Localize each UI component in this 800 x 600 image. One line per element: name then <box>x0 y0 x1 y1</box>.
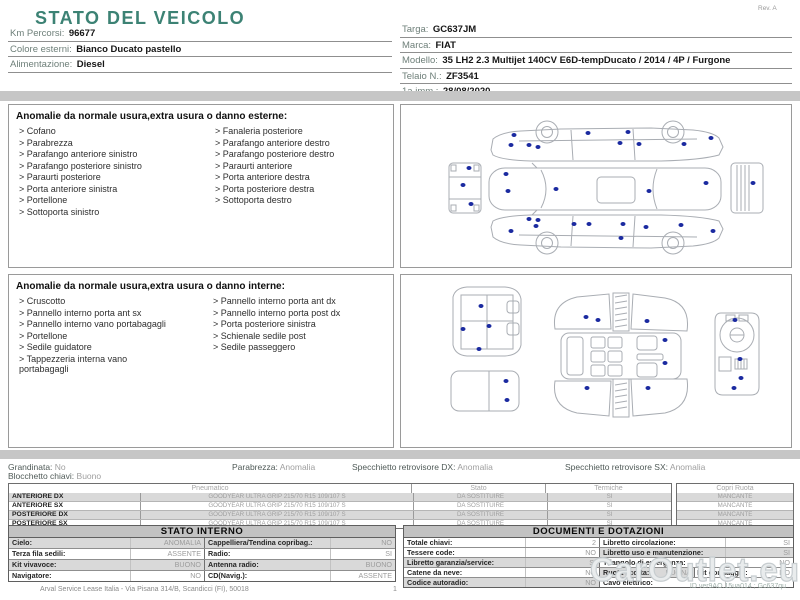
kv-label: Libretto circolazione: <box>600 538 725 547</box>
kv-label: Radio: <box>205 549 330 559</box>
tyre-row: POSTERIORE DXGOODYEAR ULTRA GRIP 215/70 … <box>9 510 671 519</box>
damage-dot <box>626 130 631 134</box>
status-blocchetto-chiavi: Blocchetto chiavi: Buono <box>8 471 101 481</box>
damage-dot <box>509 229 514 233</box>
status-label: Parabrezza: <box>232 462 278 472</box>
damage-dot <box>738 357 743 361</box>
kv-value: BUONO <box>130 560 205 570</box>
damage-dot <box>584 315 589 319</box>
damage-dot <box>572 222 577 226</box>
interior-damage-diagram <box>400 274 792 448</box>
damage-dot <box>751 181 756 185</box>
kv-label: Libretto garanzia/service: <box>404 558 525 567</box>
field-label: Colore esterni: <box>10 44 72 55</box>
field-label: Modello: <box>402 55 438 66</box>
damage-dot <box>644 225 649 229</box>
anomaly-item: > Cofano <box>19 126 207 137</box>
anomaly-item: > Portellone <box>19 331 167 342</box>
status-value: Buono <box>77 471 102 481</box>
damage-dot <box>512 133 517 137</box>
tyre-thermal: SI <box>548 502 671 510</box>
tyre-model: GOODYEAR ULTRA GRIP 215/70 R15 109/107 S <box>141 511 414 519</box>
anomaly-item: > Schienale sedile post <box>213 331 393 342</box>
damage-dot <box>505 398 510 402</box>
damage-dot <box>647 189 652 193</box>
documenti-table: DOCUMENTI E DOTAZIONI Totale chiavi:2Lib… <box>403 525 794 588</box>
kv-value: NO <box>525 548 600 557</box>
kv-value: SI <box>330 549 395 559</box>
tyre-model: GOODYEAR ULTRA GRIP 215/70 R15 109/107 S <box>141 502 414 510</box>
anomaly-item: > Fanaleria posteriore <box>215 126 393 137</box>
field-value: ZF3541 <box>446 71 479 82</box>
damage-dot <box>646 386 651 390</box>
kv-label: Navigatore: <box>9 571 130 581</box>
anomaly-item: > Parafango posteriore destro <box>215 149 393 160</box>
kv-row: Cielo:ANOMALIACappelliera/Tendina coprib… <box>9 538 395 548</box>
damage-dot <box>504 172 509 176</box>
damage-dot <box>506 189 511 193</box>
vehicle-info-left: Km Percorsi: 96677 Colore esterni: Bianc… <box>8 26 392 73</box>
anomaly-item: > Parafango anteriore sinistro <box>19 149 207 160</box>
damage-dot <box>509 143 514 147</box>
kv-label: Triangolo di emergenza: <box>600 558 725 567</box>
kv-value: SI <box>725 548 793 557</box>
tyre-state: DA SOSTITUIRE <box>414 502 548 510</box>
anomaly-item: > Pannello interno porta ant dx <box>213 296 393 307</box>
field-label: Km Percorsi: <box>10 28 64 39</box>
kv-label: Catene da neve: <box>404 568 525 577</box>
kv-label: Libretto uso e manutenzione: <box>600 548 725 557</box>
status-label: Specchietto retrovisore SX: <box>565 462 668 472</box>
field-row: Marca: FIAT <box>400 38 792 54</box>
kv-label: Kit vivavoce: <box>9 560 130 570</box>
status-label: Blocchetto chiavi: <box>8 471 74 481</box>
field-row: Telaio N.: ZF3541 <box>400 69 792 85</box>
anomaly-item: > Cruscotto <box>19 296 167 307</box>
stato-interno-body: Cielo:ANOMALIACappelliera/Tendina coprib… <box>9 538 395 581</box>
field-label: Telaio N.: <box>402 71 442 82</box>
anomaly-item: > Porta anteriore sinistra <box>19 184 207 195</box>
tyre-position: ANTERIORE DX <box>9 493 141 501</box>
damage-dot <box>554 187 559 191</box>
anomaly-item: > Porta anteriore destra <box>215 172 393 183</box>
damage-dot <box>467 166 472 170</box>
kv-label: Totale chiavi: <box>404 538 525 547</box>
field-label: Targa: <box>402 24 428 35</box>
kv-label: Codice autoradio: <box>404 578 525 587</box>
field-label: Alimentazione: <box>10 59 72 70</box>
damage-dot <box>527 143 532 147</box>
kv-row: Totale chiavi:2Libretto circolazione:SI <box>404 538 793 547</box>
kv-value: NO <box>330 538 395 548</box>
footer-company: Arval Service Lease Italia - Via Pisana … <box>40 586 249 593</box>
damage-dot <box>585 386 590 390</box>
damage-dot <box>469 202 474 206</box>
wheel-cover-row: MANCANTE <box>677 493 793 501</box>
anomaly-item: > Paraurti anteriore <box>215 161 393 172</box>
vehicle-condition-report-page: STATO DEL VEICOLO Rev. A Km Percorsi: 96… <box>0 0 800 600</box>
kv-value: SI <box>525 558 600 567</box>
kv-label: Cielo: <box>9 538 130 548</box>
tyre-state: DA SOSTITUIRE <box>414 493 548 501</box>
damage-dot <box>534 224 539 228</box>
status-value: Anomalia <box>457 462 492 472</box>
tyre-table: Pneumatico Stato Termiche ANTERIORE DXGO… <box>8 483 672 529</box>
exterior-damage-dots <box>401 105 791 267</box>
anomaly-item: > Parabrezza <box>19 138 207 149</box>
damage-dot <box>637 142 642 146</box>
field-value: Bianco Ducato pastello <box>76 44 181 55</box>
kv-row: Tessere code:NOLibretto uso e manutenzio… <box>404 547 793 557</box>
kv-value: 2 <box>525 538 600 547</box>
wheel-cover-header: Copri Ruota <box>677 484 793 493</box>
revision-label: Rev. A <box>758 5 777 12</box>
tyre-header-copri-ruota: Copri Ruota <box>677 484 793 493</box>
field-value: GC637JM <box>433 24 476 35</box>
damage-dot <box>596 318 601 322</box>
kv-value: NO <box>525 578 600 587</box>
kv-label: Ruota scorta: <box>600 568 653 577</box>
wheel-cover-value: MANCANTE <box>677 493 793 501</box>
kv-label: Tessere code: <box>404 548 525 557</box>
damage-dot <box>732 386 737 390</box>
exterior-anomalies-box: Anomalie da normale usura,extra usura o … <box>8 104 394 268</box>
interior-anomalies-columns: > Cruscotto> Pannello interno porta ant … <box>9 296 393 376</box>
kv-value: NO <box>725 558 793 567</box>
damage-dot <box>619 236 624 240</box>
field-row: Targa: GC637JM <box>400 22 792 38</box>
kv-label: Cappelliera/Tendina copribag.: <box>205 538 330 548</box>
anomaly-item: > Porta posteriore destra <box>215 184 393 195</box>
kv-value: ASSENTE <box>330 571 395 581</box>
anomaly-item: > Pannello interno porta ant sx <box>19 308 167 319</box>
tyre-model: GOODYEAR ULTRA GRIP 215/70 R15 109/107 S <box>141 493 414 501</box>
stato-interno-title: STATO INTERNO <box>9 526 395 538</box>
damage-dot <box>477 347 482 351</box>
footer-page-number: 1 <box>393 586 397 593</box>
anomaly-item: > Portellone <box>19 195 207 206</box>
kv-value: SI <box>725 538 793 547</box>
field-value: Diesel <box>77 59 105 70</box>
field-value: 35 LH2 2.3 Multijet 140CV E6D-tempDucato… <box>442 55 730 66</box>
anomaly-item: > Pannello interno porta post dx <box>213 308 393 319</box>
damage-dot <box>679 223 684 227</box>
anomaly-item: > Sedile guidatore <box>19 342 167 353</box>
kv-row: Libretto garanzia/service:SITriangolo di… <box>404 557 793 567</box>
anomaly-item: > Sottoporta sinistro <box>19 207 207 218</box>
kv-label: Antenna radio: <box>205 560 330 570</box>
damage-dot <box>739 376 744 380</box>
wheel-cover-value: MANCANTE <box>677 502 793 510</box>
tyre-header-stato: Stato <box>412 484 546 493</box>
exterior-damage-diagram <box>400 104 792 268</box>
damage-dot <box>504 379 509 383</box>
status-specchietto-sx: Specchietto retrovisore SX: Anomalia <box>565 462 705 472</box>
kv-value: NO <box>525 568 600 577</box>
field-row: Colore esterni: Bianco Ducato pastello <box>8 42 392 58</box>
damage-dot <box>461 183 466 187</box>
status-value: Anomalia <box>280 462 315 472</box>
interior-anomalies-title: Anomalie da normale usura,extra usura o … <box>9 275 393 296</box>
damage-dot <box>586 131 591 135</box>
documenti-body: Totale chiavi:2Libretto circolazione:SIT… <box>404 538 793 587</box>
damage-dot <box>711 229 716 233</box>
status-value: Anomalia <box>670 462 705 472</box>
tyre-thermal: SI <box>548 493 671 501</box>
wheel-cover-row: MANCANTE <box>677 510 793 519</box>
anomaly-item: > Paraurti posteriore <box>19 172 207 183</box>
interior-damage-dots <box>401 275 791 447</box>
kv-value: BUONA <box>653 568 695 577</box>
field-row: Alimentazione: Diesel <box>8 57 392 73</box>
divider-band <box>0 91 800 101</box>
damage-dot <box>487 324 492 328</box>
anomaly-item: > Porta posteriore sinistra <box>213 319 393 330</box>
interior-anomalies-col-left: > Cruscotto> Pannello interno porta ant … <box>19 296 167 376</box>
vehicle-info-right: Targa: GC637JM Marca: FIAT Modello: 35 L… <box>400 22 792 100</box>
kv-row: Kit vivavoce:BUONOAntenna radio:BUONO <box>9 559 395 570</box>
damage-dot <box>704 181 709 185</box>
damage-dot <box>663 361 668 365</box>
kv-value: ASSENTE <box>130 549 205 559</box>
anomaly-item: > Sedile passeggero <box>213 342 393 353</box>
damage-dot <box>536 218 541 222</box>
kv-value: ANOMALIA <box>130 538 205 548</box>
exterior-anomalies-columns: > Cofano> Parabrezza> Parafango anterior… <box>9 126 393 218</box>
tyre-table-body: ANTERIORE DXGOODYEAR ULTRA GRIP 215/70 R… <box>9 493 671 528</box>
kv-value: BUONO <box>330 560 395 570</box>
field-row: Modello: 35 LH2 2.3 Multijet 140CV E6D-t… <box>400 53 792 69</box>
tyre-row: ANTERIORE DXGOODYEAR ULTRA GRIP 215/70 R… <box>9 493 671 501</box>
wheel-cover-value: MANCANTE <box>677 511 793 519</box>
watermark-id-line: ID ver9AO.15ua014 ; Gc637qu <box>690 583 786 590</box>
kv-row: Navigatore:NOCD(Navig.):ASSENTE <box>9 570 395 581</box>
kv-value: NO <box>755 568 793 577</box>
stato-interno-table: STATO INTERNO Cielo:ANOMALIACappelliera/… <box>8 525 396 582</box>
field-value: 96677 <box>69 28 95 39</box>
exterior-anomalies-title: Anomalie da normale usura,extra usura o … <box>9 105 393 126</box>
wheel-cover-row: MANCANTE <box>677 501 793 510</box>
interior-anomalies-col-right: > Pannello interno porta ant dx> Pannell… <box>213 296 393 376</box>
tyre-table-header: Pneumatico Stato Termiche <box>9 484 671 493</box>
tyre-header-pneumatico: Pneumatico <box>9 484 412 493</box>
wheel-cover-table: Copri Ruota MANCANTEMANCANTEMANCANTEMANC… <box>676 483 794 529</box>
kv-value: NO <box>130 571 205 581</box>
kv-label: Terza fila sedili: <box>9 549 130 559</box>
damage-dot <box>479 304 484 308</box>
damage-dot <box>587 222 592 226</box>
wheel-cover-table-body: MANCANTEMANCANTEMANCANTEMANCANTE <box>677 493 793 528</box>
tyre-state: DA SOSTITUIRE <box>414 511 548 519</box>
damage-dot <box>682 142 687 146</box>
kv-label: CD(Navig.): <box>205 571 330 581</box>
tyre-header-termiche: Termiche <box>546 484 671 493</box>
status-label: Specchietto retrovisore DX: <box>352 462 455 472</box>
kv-row: Catene da neve:NORuota scorta:BUONAKit g… <box>404 567 793 577</box>
damage-dot <box>621 222 626 226</box>
anomaly-item: > Parafango anteriore destro <box>215 138 393 149</box>
exterior-anomalies-col-right: > Fanaleria posteriore> Parafango anteri… <box>215 126 393 218</box>
anomaly-item: > Sottoporta destro <box>215 195 393 206</box>
damage-dot <box>618 141 623 145</box>
damage-dot <box>645 319 650 323</box>
tyre-position: POSTERIORE DX <box>9 511 141 519</box>
anomaly-item: > Pannello interno vano portabagagli <box>19 319 167 330</box>
status-specchietto-dx: Specchietto retrovisore DX: Anomalia <box>352 462 493 472</box>
documenti-title: DOCUMENTI E DOTAZIONI <box>404 526 793 538</box>
field-row: Km Percorsi: 96677 <box>8 26 392 42</box>
kv-label: Kit gonfiaggio: <box>695 568 755 577</box>
status-parabrezza: Parabrezza: Anomalia <box>232 462 315 472</box>
interior-anomalies-box: Anomalie da normale usura,extra usura o … <box>8 274 394 448</box>
field-label: Marca: <box>402 40 431 51</box>
damage-dot <box>461 327 466 331</box>
exterior-anomalies-col-left: > Cofano> Parabrezza> Parafango anterior… <box>19 126 207 218</box>
anomaly-item: > Tappezzeria interna vano portabagagli <box>19 354 167 375</box>
tyre-position: ANTERIORE SX <box>9 502 141 510</box>
damage-dot <box>733 318 738 322</box>
divider-band <box>0 450 800 459</box>
damage-dot <box>527 217 532 221</box>
anomaly-item: > Parafango posteriore sinistro <box>19 161 207 172</box>
damage-dot <box>663 338 668 342</box>
tyre-row: ANTERIORE SXGOODYEAR ULTRA GRIP 215/70 R… <box>9 501 671 510</box>
field-value: FIAT <box>436 40 456 51</box>
damage-dot <box>709 136 714 140</box>
damage-dot <box>536 145 541 149</box>
kv-row: Terza fila sedili:ASSENTERadio:SI <box>9 548 395 559</box>
tyre-thermal: SI <box>548 511 671 519</box>
